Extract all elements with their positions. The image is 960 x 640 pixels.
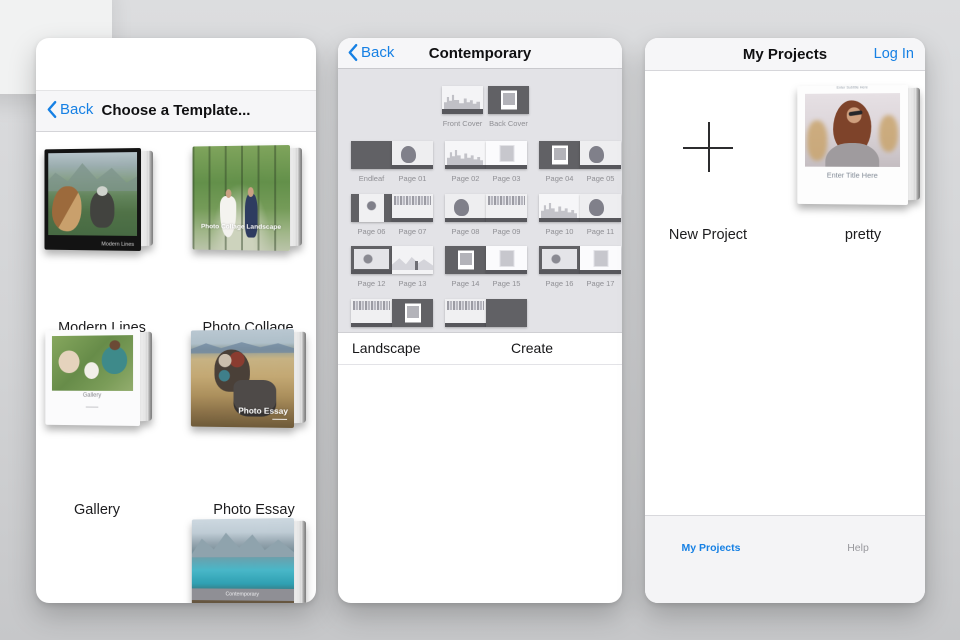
action-bar: Landscape Create — [338, 332, 622, 365]
login-button[interactable]: Log In — [874, 46, 914, 62]
cover-art-shape — [102, 346, 127, 374]
page-thumb — [351, 246, 392, 274]
page-thumb — [539, 194, 580, 222]
cover-art-shape — [826, 143, 879, 167]
cover-caption: Contemporary — [192, 591, 294, 598]
book-cover: Contemporary — [192, 518, 294, 603]
landscape-button[interactable]: Landscape — [352, 340, 421, 356]
page-thumb — [486, 299, 527, 327]
new-project-label: New Project — [645, 227, 773, 243]
page-thumb — [445, 299, 486, 327]
tab-help[interactable]: Help — [813, 542, 903, 554]
page-thumb — [445, 141, 486, 169]
cover-photo — [193, 145, 290, 251]
page-thumb — [351, 194, 392, 222]
cover-art-shape — [879, 115, 898, 152]
projects-screen: My Projects Log In New Project Enter Tit… — [645, 38, 925, 603]
cover-art-shape — [220, 196, 236, 238]
book-cover: Gallery — [45, 329, 140, 426]
back-label: Back — [60, 101, 93, 118]
page-thumb — [486, 246, 527, 274]
page-thumb — [580, 194, 621, 222]
cover-photo — [52, 335, 133, 391]
page-thumb-label: Page 03 — [476, 174, 537, 183]
template-book-contemporary[interactable]: Contemporary — [188, 518, 306, 603]
page-thumb-label: Page 07 — [382, 227, 443, 236]
cover-caption: Modern Lines — [101, 242, 134, 248]
template-book-photo-essay[interactable]: Photo Essay — [187, 329, 306, 428]
back-button[interactable]: Back — [46, 100, 93, 119]
page-thumb — [486, 194, 527, 222]
cover-thumb — [488, 86, 529, 114]
project-book-pretty[interactable]: Enter Title Here Enter Subtitle Here — [795, 85, 920, 205]
cover-thumb-label: Back Cover — [478, 119, 539, 128]
cover-caption: Gallery — [45, 393, 140, 399]
page-thumb — [539, 141, 580, 169]
contemporary-screen: Contemporary Back Front CoverBack CoverE… — [338, 38, 622, 603]
page-thumb-label: Page 09 — [476, 227, 537, 236]
templates-screen: Choose a Template... Back Modern Lines P… — [36, 38, 316, 603]
cover-art-shape — [58, 350, 79, 373]
project-name-label: pretty — [798, 227, 925, 243]
page-thumb-label: Page 17 — [570, 279, 622, 288]
page-thumb-label: Page 05 — [570, 174, 622, 183]
cover-thumb — [442, 86, 483, 114]
cover-art-shape — [84, 362, 99, 379]
cover-subtitle-dash — [272, 419, 287, 420]
page-thumb — [445, 194, 486, 222]
cover-subtitle-dash — [86, 406, 99, 407]
create-button[interactable]: Create — [496, 340, 568, 356]
page-thumb-label: Page 01 — [382, 174, 443, 183]
book-cover: Photo Collage Landscape — [193, 145, 290, 251]
pages-sheet: Front CoverBack CoverEndleafPage 01Page … — [338, 69, 622, 332]
book-cover: Photo Essay — [191, 329, 294, 428]
page-thumb — [486, 141, 527, 169]
page-thumb — [392, 141, 433, 169]
page-thumb-label: Page 15 — [476, 279, 537, 288]
contemporary-navbar: Contemporary Back — [338, 38, 622, 69]
page-thumb — [392, 246, 433, 274]
page-thumb-label: Page 11 — [570, 227, 622, 236]
template-book-photo-collage[interactable]: Photo Collage Landscape — [189, 145, 302, 251]
projects-navbar: My Projects Log In — [645, 38, 925, 71]
templates-navbar: Choose a Template... Back — [36, 90, 316, 132]
page-thumb — [580, 141, 621, 169]
page-thumb — [580, 246, 621, 274]
cover-caption-band: Contemporary — [192, 588, 294, 601]
cover-art-shape — [90, 191, 114, 229]
template-label: Gallery — [36, 502, 158, 518]
cover-photo — [48, 152, 137, 236]
chevron-left-icon — [347, 43, 358, 62]
cover-photo — [805, 93, 900, 167]
page-thumb — [392, 299, 433, 327]
new-project-button[interactable] — [683, 122, 733, 172]
cover-subtitle: Enter Subtitle Here — [797, 85, 908, 90]
cover-art-shape — [244, 194, 257, 238]
page-thumb-label: Page 13 — [382, 279, 443, 288]
template-label: Photo Essay — [188, 502, 316, 518]
cover-title: Enter Title Here — [797, 171, 908, 180]
book-cover: Enter Title Here Enter Subtitle Here — [797, 85, 908, 205]
back-button[interactable]: Back — [347, 43, 394, 62]
cover-art-shape — [807, 121, 828, 161]
book-cover: Modern Lines — [44, 148, 141, 251]
template-book-gallery[interactable]: Gallery — [42, 329, 152, 426]
page-thumb — [351, 141, 392, 169]
page-thumb — [351, 299, 392, 327]
tab-my-projects[interactable]: My Projects — [666, 542, 756, 554]
page-thumb — [445, 246, 486, 274]
cover-art-shape — [52, 187, 82, 232]
template-book-modern-lines[interactable]: Modern Lines — [41, 148, 153, 251]
cover-caption: Photo Essay — [238, 406, 288, 416]
bottom-tab-bar: My ProjectsHelp — [645, 515, 925, 603]
chevron-left-icon — [46, 100, 57, 119]
cover-caption: Photo Collage Landscape — [193, 223, 290, 231]
page-thumb — [392, 194, 433, 222]
back-label: Back — [361, 44, 394, 61]
page-thumb — [539, 246, 580, 274]
